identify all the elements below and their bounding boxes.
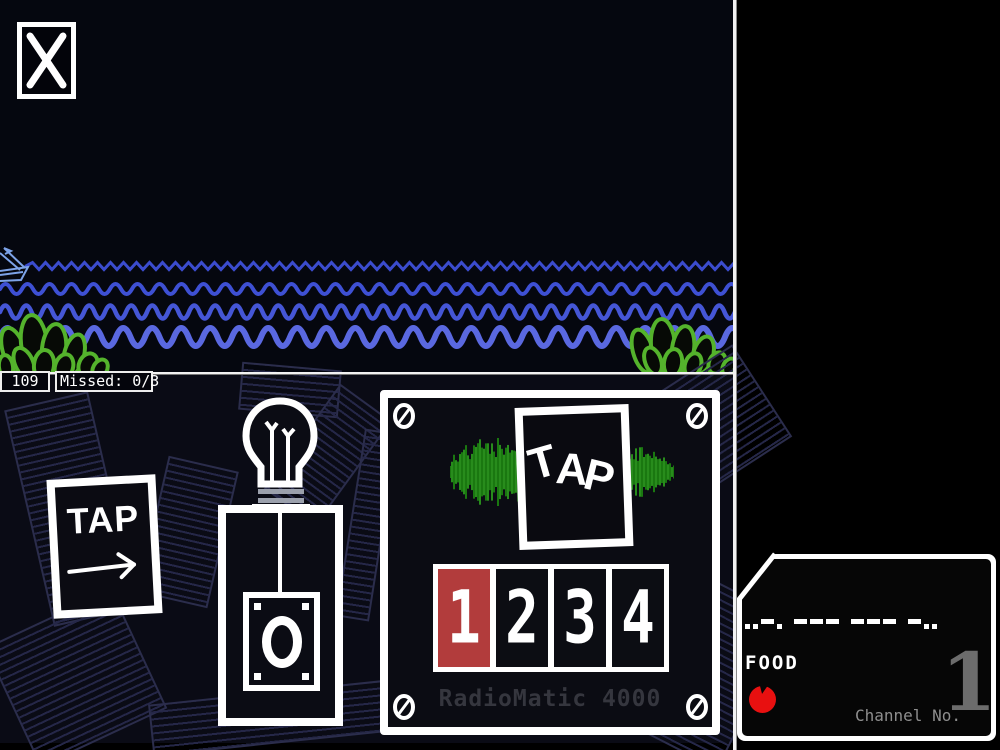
screw-icon [391, 401, 417, 431]
tomato-icon [749, 686, 776, 713]
screw-icon [684, 692, 710, 722]
morse-dot [745, 624, 750, 629]
speaker-ring [262, 616, 302, 668]
channel-button-digit: 2 [505, 576, 539, 661]
screw-icon [684, 401, 710, 431]
morse-dash [908, 619, 921, 624]
bulb-socket [258, 498, 304, 503]
channel-button-digit: 4 [621, 576, 655, 661]
grille-screw-mark [302, 673, 309, 680]
channel-button-3[interactable]: 3 [554, 569, 606, 667]
bush-left [0, 309, 112, 375]
close-x-icon [22, 27, 71, 94]
morse-dash [851, 619, 864, 624]
bulb-flange [252, 504, 310, 509]
brand-label: RadioMatic 4000 [388, 686, 712, 712]
arrow-right-icon [63, 549, 149, 587]
morse-dash [810, 619, 823, 624]
morse-dot [924, 624, 929, 629]
boat [0, 246, 36, 286]
missed-counter-chip: Missed: 0/3 [55, 371, 153, 392]
decoded-word: FOOD [745, 652, 799, 674]
game-screen: 109 Missed: 0/3 TAP [0, 0, 1000, 750]
bulb-socket [258, 489, 304, 494]
grille-screw-mark [254, 673, 261, 680]
channel-button-1[interactable]: 1 [438, 569, 490, 667]
tap-overlay-card[interactable]: TAP [515, 404, 634, 550]
receiver-panel: FOOD Channel No. 1 [737, 554, 996, 741]
tap-instruction-card[interactable]: TAP [46, 474, 162, 619]
tap-card-label: TAP [56, 497, 151, 544]
morse-dot [932, 624, 937, 629]
channel-button-4[interactable]: 4 [612, 569, 664, 667]
channel-number: 1 [941, 642, 997, 722]
grille-screw-mark [254, 603, 261, 610]
speaker-grille [243, 592, 320, 691]
morse-dash [794, 619, 807, 624]
morse-dot [777, 624, 782, 629]
channel-button-digit: 3 [563, 576, 597, 661]
vertical-divider [733, 0, 737, 750]
screw-icon [391, 692, 417, 722]
morse-dash [826, 619, 839, 624]
lamp-wire [278, 511, 282, 595]
channel-button-digit: 1 [447, 576, 481, 661]
score-chip: 109 [0, 371, 50, 392]
morse-dot [753, 624, 758, 629]
close-button[interactable] [17, 22, 76, 99]
morse-display [745, 624, 940, 640]
channel-button-2[interactable]: 2 [496, 569, 548, 667]
grille-screw-mark [302, 603, 309, 610]
morse-dash [761, 619, 774, 624]
channel-buttons: 1 2 3 4 [433, 564, 669, 672]
corner-cut [735, 552, 785, 612]
morse-dash [883, 619, 896, 624]
morse-dash [867, 619, 880, 624]
